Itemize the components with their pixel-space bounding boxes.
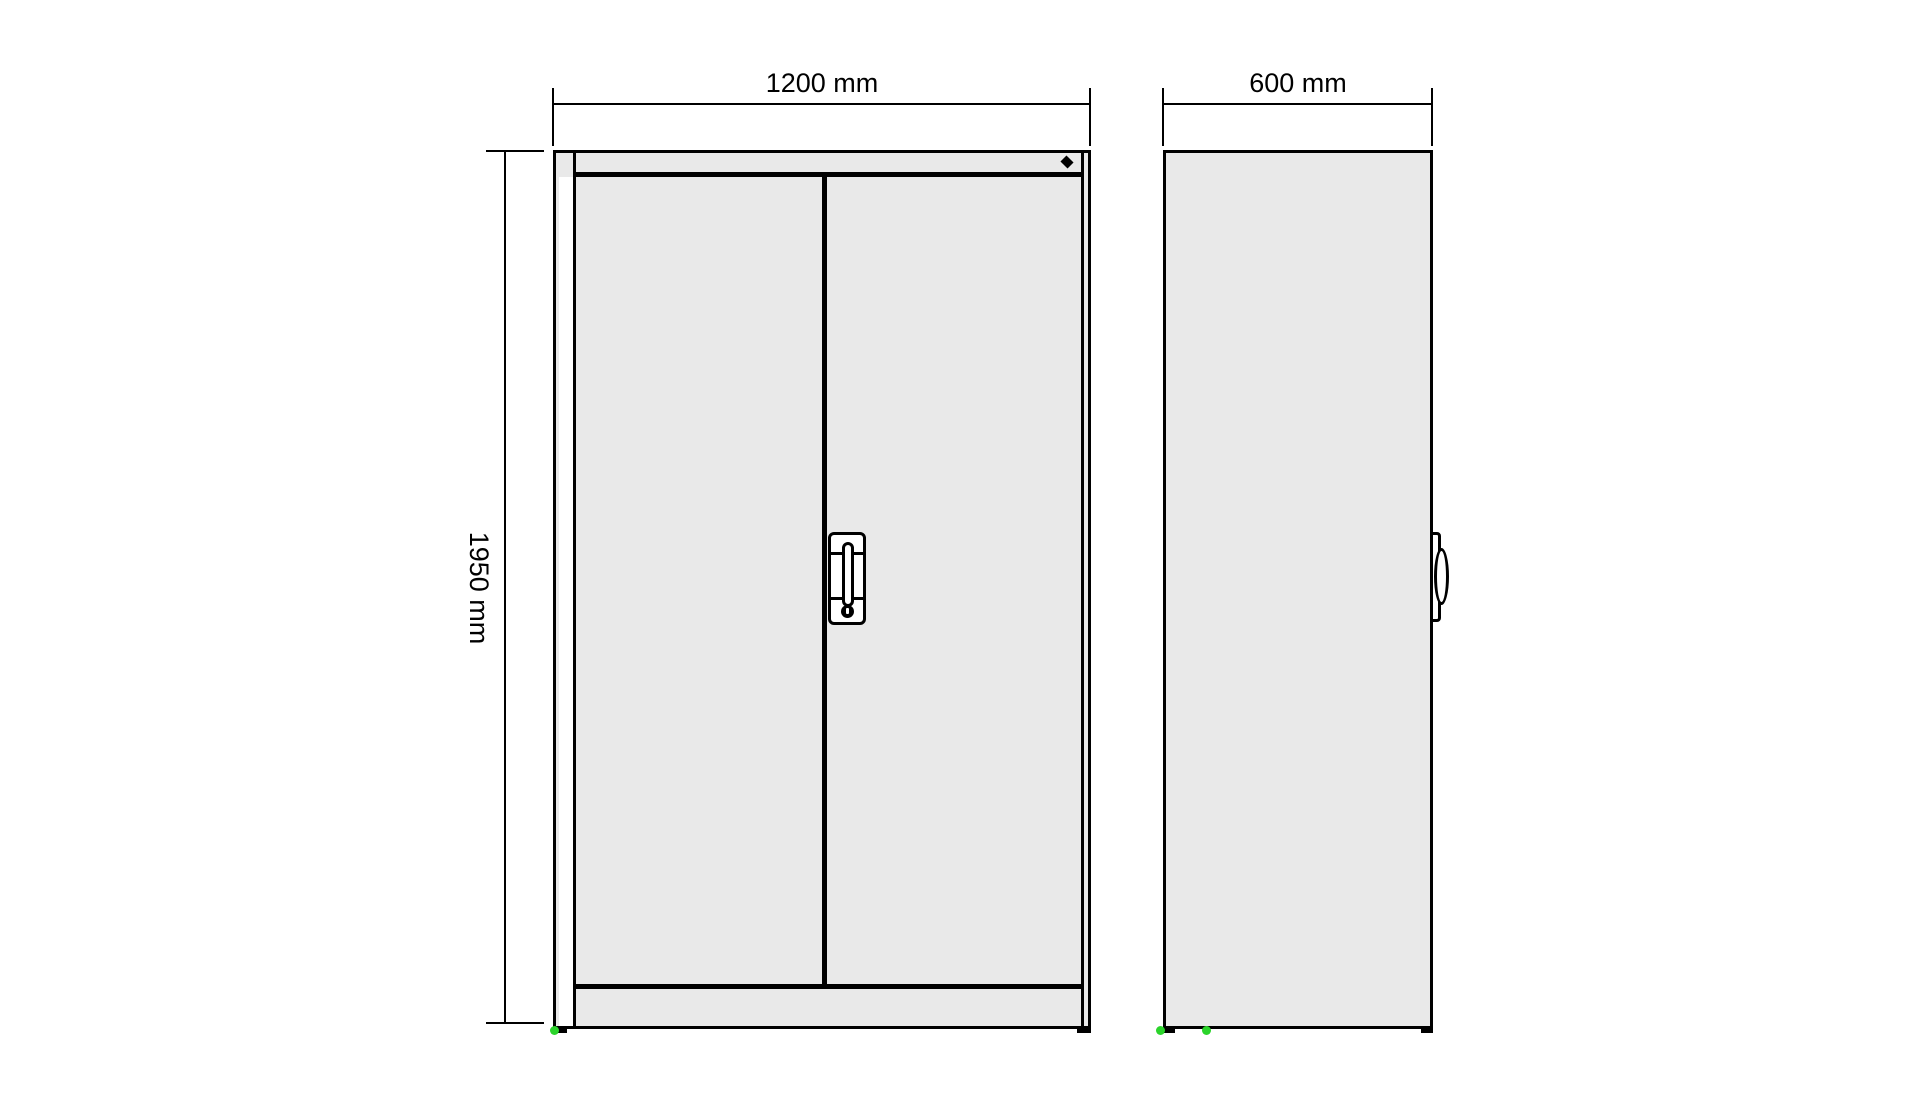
front-height-dimension-label: 1950 mm bbox=[464, 488, 494, 688]
side-corner-marker-dot-1 bbox=[1156, 1026, 1165, 1035]
front-left-frame-line bbox=[573, 153, 576, 1026]
door-top-edge-line bbox=[573, 172, 1084, 177]
front-view-cabinet-body bbox=[553, 150, 1091, 1029]
door-bottom-edge-line bbox=[573, 984, 1084, 989]
front-width-dimension-label: 1200 mm bbox=[553, 70, 1091, 97]
handle-grip bbox=[842, 542, 854, 607]
front-right-frame-line bbox=[1081, 153, 1084, 1026]
front-corner-marker-dot bbox=[550, 1026, 559, 1035]
front-left-frame-band bbox=[559, 177, 573, 1026]
front-height-dimension-tick-bottom bbox=[486, 1022, 544, 1024]
side-handle-grip-profile bbox=[1434, 548, 1449, 605]
front-width-dimension-line bbox=[553, 103, 1091, 105]
front-height-dimension-line bbox=[504, 151, 506, 1024]
side-corner-marker-dot-2 bbox=[1202, 1026, 1211, 1035]
front-right-foot bbox=[1077, 1028, 1091, 1033]
side-depth-dimension-label: 600 mm bbox=[1163, 70, 1433, 97]
side-view-cabinet-body bbox=[1163, 150, 1433, 1029]
side-depth-dimension-line bbox=[1163, 103, 1433, 105]
lock-diamond-icon bbox=[1060, 155, 1073, 168]
side-right-foot bbox=[1421, 1028, 1433, 1033]
door-divider-line bbox=[822, 172, 827, 989]
keyhole-slot bbox=[846, 608, 849, 614]
front-height-dimension-tick-top bbox=[486, 150, 544, 152]
drawing-canvas: 1200 mm 600 mm 1950 mm bbox=[0, 0, 1920, 1104]
